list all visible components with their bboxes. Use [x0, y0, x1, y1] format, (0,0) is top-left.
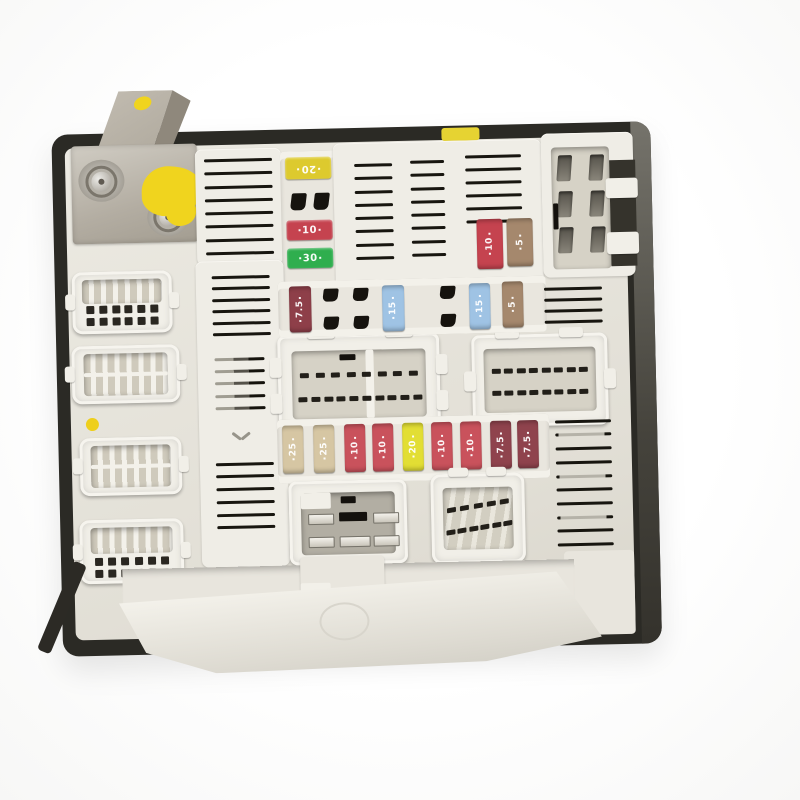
vent-slat	[354, 163, 391, 167]
vent-slat	[556, 460, 612, 464]
fuse-5a: 5	[502, 281, 524, 327]
vent-slat	[411, 226, 445, 230]
connector-ear	[181, 542, 191, 558]
terminal-pin	[566, 367, 575, 372]
terminal-pin	[409, 371, 418, 376]
terminal-slot	[557, 191, 573, 217]
vent-slat	[412, 239, 446, 243]
terminal-pin	[108, 558, 116, 566]
fuse-label: 10	[437, 433, 448, 459]
fuse-7-5a: 7.5	[490, 421, 512, 469]
terminal-pin	[125, 317, 133, 325]
fuse-label: 7.5	[523, 429, 534, 459]
fuse-10a: 10	[476, 219, 503, 270]
connector-ear	[177, 364, 187, 380]
vent-slat	[355, 203, 392, 207]
connector-divider	[365, 350, 375, 418]
fuse-20a: 20	[402, 423, 424, 471]
fuse-label: 20	[408, 434, 419, 460]
terminal-pin	[150, 305, 158, 313]
yellow-clip	[441, 127, 479, 141]
terminal-pin	[95, 570, 103, 578]
vent-panel-top-left	[195, 148, 284, 266]
fuse-label: 15	[388, 295, 399, 321]
connector-ear	[435, 354, 447, 374]
terminal-pin	[542, 390, 551, 395]
fuse-label: 10	[485, 231, 496, 257]
castellation-tab	[605, 178, 637, 199]
vent-slat	[556, 474, 612, 478]
terminal-pin	[529, 368, 538, 373]
vent-slat	[555, 419, 611, 423]
terminal-pin	[504, 368, 513, 373]
castellation-tab	[607, 232, 639, 255]
fuse-15a: 15	[469, 283, 491, 329]
terminal-pin	[112, 305, 120, 313]
terminal-pin	[378, 371, 387, 376]
fuse-7-5a: 7.5	[517, 420, 539, 468]
terminal-hole	[290, 193, 307, 210]
connector-ear	[169, 292, 179, 308]
terminal-pin	[400, 395, 409, 400]
vent-group	[207, 348, 273, 419]
vent-slat	[556, 488, 612, 492]
terminal-pin	[311, 397, 320, 402]
relay-socket	[288, 479, 408, 566]
connector-ribs	[83, 352, 168, 396]
vent-slat	[215, 369, 265, 373]
fuse-label: 10	[296, 224, 323, 236]
vent-slat	[215, 394, 265, 398]
vent-slat	[216, 406, 266, 410]
vent-slat	[356, 229, 393, 233]
connector-socket-small	[430, 472, 526, 564]
vent-slat	[213, 309, 271, 313]
terminal-slot	[589, 190, 605, 216]
terminal-pin	[150, 316, 158, 324]
fuse-10a: 10	[372, 423, 394, 471]
terminal-pin	[137, 305, 145, 313]
connector-socket-2	[71, 344, 180, 404]
relay-socket-top-right	[540, 132, 635, 278]
vent-slat	[217, 525, 275, 529]
vent-slat	[217, 512, 275, 516]
vent-block-center	[333, 139, 544, 292]
fuse-10a: 10	[431, 422, 453, 470]
connector-ear	[270, 394, 282, 414]
terminal-slot	[558, 227, 574, 253]
terminal-pin	[505, 390, 514, 395]
key-slot	[341, 496, 356, 503]
connector-ribs	[90, 444, 171, 488]
molded-circle-mark	[319, 602, 370, 641]
terminal-pin	[337, 396, 346, 401]
vent-slat	[412, 253, 446, 257]
fuse-25a: 25	[282, 425, 304, 473]
connector-ear	[73, 458, 83, 474]
connector-ear	[604, 368, 616, 388]
blade-slot	[340, 536, 371, 548]
vent-slat	[465, 167, 521, 171]
connector-ear	[464, 371, 476, 391]
terminal-pin	[362, 372, 371, 377]
vent-slat	[544, 297, 602, 301]
vent-slat	[544, 286, 602, 290]
terminal-pin	[517, 390, 526, 395]
vent-slat	[355, 177, 392, 181]
vent-slat	[356, 216, 393, 220]
key-slot	[339, 354, 355, 360]
key-slot	[553, 203, 559, 229]
vent-slat	[356, 256, 393, 260]
fuse-label: 25	[288, 437, 299, 463]
vent-slat	[465, 154, 521, 158]
vent-slat	[207, 251, 274, 256]
terminal-pin	[517, 368, 526, 373]
fuse-label: 25	[319, 436, 330, 462]
blade-slot	[373, 512, 399, 524]
stud-terminal-tip	[98, 179, 104, 185]
vent-slat	[410, 187, 444, 191]
vent-slat	[410, 160, 444, 164]
blade-slot-black	[339, 512, 367, 522]
terminal-pin	[347, 372, 356, 377]
vent-column	[405, 150, 452, 267]
fuse-label: 7.5	[496, 430, 507, 460]
pin-row	[87, 316, 159, 326]
terminal-pin	[99, 306, 107, 314]
fuse-25a: 25	[313, 425, 335, 473]
rib-divider	[84, 371, 168, 377]
blade-slot	[309, 537, 335, 549]
relay-recess-step	[301, 493, 331, 510]
terminal-slot	[556, 155, 572, 181]
terminal-pin	[86, 306, 94, 314]
vent-group-mid-right	[536, 278, 611, 332]
vent-slat	[557, 515, 613, 519]
terminal-pin	[554, 367, 563, 372]
pin-row	[86, 305, 158, 315]
terminal-pin	[579, 367, 588, 372]
fuse-label: 20	[295, 162, 322, 174]
fuse-label: 10	[350, 435, 361, 461]
fuse-label: 5	[515, 233, 525, 252]
terminal-hole	[313, 193, 330, 210]
terminal-pin	[315, 373, 324, 378]
fuse-20a: 20	[285, 157, 331, 180]
terminal-pin	[492, 369, 501, 374]
fuse-10a: 10	[460, 421, 482, 469]
vent-group	[203, 266, 279, 346]
terminal-pin	[108, 570, 116, 578]
connector-recess	[483, 347, 596, 414]
vent-slat	[356, 243, 393, 247]
vent-slat	[545, 308, 603, 312]
terminal-pin	[112, 317, 120, 325]
molded-arrow-icon	[241, 431, 251, 440]
terminal-pin	[324, 397, 333, 402]
connector-recess	[291, 348, 427, 419]
vent-slat	[466, 193, 522, 197]
terminal-pin	[125, 305, 133, 313]
vent-slat	[212, 286, 270, 290]
connector-ear	[269, 358, 281, 378]
vent-slat	[555, 433, 611, 437]
terminal-pin	[300, 373, 309, 378]
vent-slat	[558, 542, 614, 546]
terminal-pin	[148, 557, 156, 565]
vent-slat	[204, 158, 271, 163]
vent-slat	[466, 206, 522, 210]
terminal-pin	[135, 557, 143, 565]
vent-slat	[355, 190, 392, 194]
vent-column-right	[547, 408, 622, 558]
fuse-5a: 5	[506, 218, 533, 267]
terminal-pin	[375, 395, 384, 400]
vent-slat	[216, 474, 274, 478]
blade-slot	[374, 535, 400, 547]
rib-divider	[91, 463, 171, 469]
photo-canvas: 20 10 30 10 5	[0, 0, 800, 800]
vent-slat	[206, 211, 273, 216]
fuse-10a: 10	[286, 220, 332, 241]
terminal-slot	[588, 154, 604, 180]
fuse-label: 5	[508, 295, 518, 314]
fuse-label: 15	[475, 293, 486, 319]
blade-slot	[308, 514, 334, 526]
terminal-pin	[388, 395, 397, 400]
vent-slat	[411, 213, 445, 217]
fuse-15a: 15	[382, 285, 405, 331]
vent-column	[349, 153, 400, 270]
terminal-pin	[121, 557, 129, 565]
connector-ribs	[82, 278, 163, 304]
terminal-pin	[298, 397, 307, 402]
vent-slat	[205, 185, 272, 190]
connector-ear	[65, 366, 75, 382]
vent-slat	[212, 298, 270, 302]
fuse-label: 7.5	[295, 294, 306, 324]
vent-slat	[557, 529, 613, 533]
terminal-slot-grid	[557, 154, 605, 253]
vent-slat	[465, 180, 521, 184]
fuse-box-unit: 20 10 30 10 5	[50, 77, 664, 682]
terminal-pin	[362, 396, 371, 401]
fuse-label: 30	[297, 252, 324, 264]
vent-group	[208, 452, 284, 540]
connector-tab	[486, 467, 506, 476]
fuse-label: 10	[378, 435, 389, 461]
terminal-pin	[492, 391, 501, 396]
fuse-30a: 30	[287, 248, 333, 269]
vent-slat	[206, 224, 273, 229]
connector-ear	[65, 294, 75, 310]
connector-ear	[179, 456, 189, 472]
terminal-slot	[590, 226, 606, 252]
fuse-10a: 10	[344, 424, 366, 472]
connector-tab	[448, 468, 468, 477]
connector-ear	[73, 544, 83, 560]
terminal-pin	[331, 372, 340, 377]
vent-slat	[216, 462, 274, 466]
vent-slat	[217, 487, 275, 491]
connector-socket-3	[79, 436, 182, 496]
vent-slat	[411, 200, 445, 204]
connector-socket-1	[71, 270, 172, 334]
vent-slat	[215, 357, 265, 361]
fuse-label: 10	[466, 433, 477, 459]
fuse-7-5a: 7.5	[289, 286, 312, 332]
vent-slat	[205, 171, 272, 176]
terminal-pin	[530, 390, 539, 395]
terminal-pin	[95, 558, 103, 566]
terminal-pin	[349, 396, 358, 401]
terminal-pin	[541, 368, 550, 373]
vent-slat	[545, 319, 603, 323]
vent-slat	[217, 500, 275, 504]
terminal-pin	[87, 318, 95, 326]
terminal-pin	[161, 556, 169, 564]
connector-ribs	[90, 526, 173, 554]
vent-slat	[212, 275, 270, 279]
vent-slat	[556, 446, 612, 450]
terminal-pin	[99, 318, 107, 326]
vent-slat	[557, 501, 613, 505]
connector-ear	[436, 390, 448, 410]
terminal-pin	[413, 395, 422, 400]
connector-recess	[442, 487, 513, 551]
vent-slat	[205, 198, 272, 203]
vent-slat	[206, 237, 273, 242]
terminal-pin	[138, 317, 146, 325]
terminal-pin	[554, 389, 563, 394]
terminal-pin	[579, 389, 588, 394]
terminal-pin	[567, 389, 576, 394]
terminal-pin	[393, 371, 402, 376]
vent-slat	[215, 382, 265, 386]
pin-row	[95, 556, 169, 566]
vent-slat	[213, 332, 271, 336]
vent-slat	[410, 173, 444, 177]
vent-slat	[213, 321, 271, 325]
